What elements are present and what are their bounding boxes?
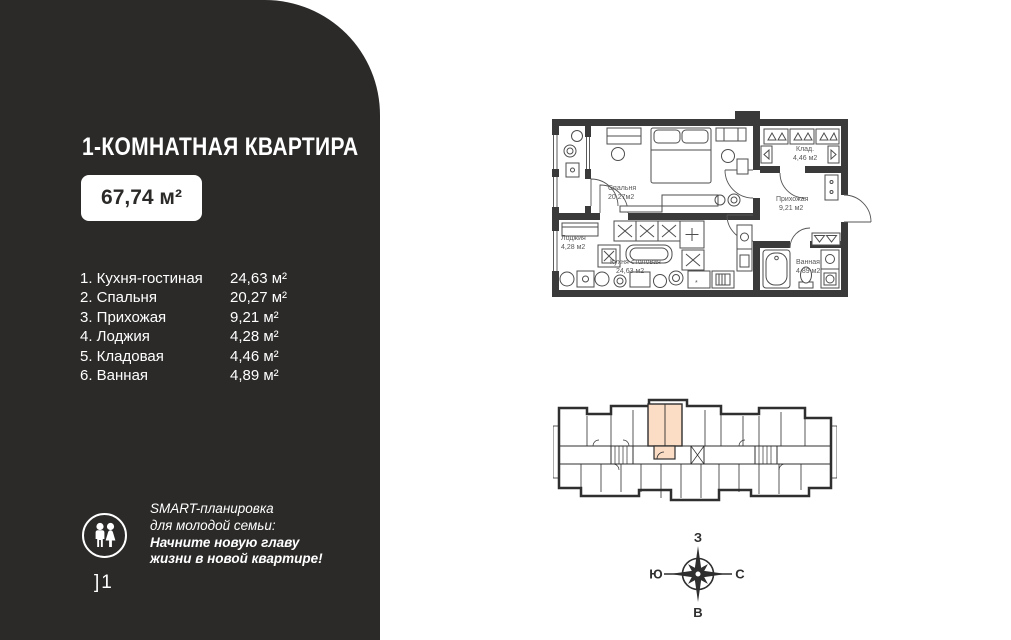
bedroom-area-label: 20,27м2 (608, 194, 634, 201)
room-area: 4,89 м² (230, 366, 287, 385)
room-list-item: 4. Лоджия 4,28 м² (80, 327, 287, 346)
hallway-furniture (812, 175, 840, 245)
promo-line-2: для молодой семьи: (150, 518, 323, 535)
room-label: 1. Кухня-гостиная (80, 269, 230, 288)
kitchen-label: Кухня-столовая (610, 259, 661, 266)
compass-north-label: С (735, 567, 745, 582)
page-title: 1-КОМНАТНАЯ КВАРТИРА (82, 133, 358, 162)
brochure-page: 1-КОМНАТНАЯ КВАРТИРА 67,74 м² 1. Кухня-г… (0, 0, 1011, 640)
promo-line-3: Начните новую главу (150, 535, 323, 552)
storage-label: Клад. (796, 146, 814, 153)
loggia-area-label: 4,28 м2 (561, 244, 585, 251)
page-mark: ]1 (94, 572, 114, 594)
couple-glyph (90, 521, 120, 550)
info-panel: 1-КОМНАТНАЯ КВАРТИРА 67,74 м² 1. Кухня-г… (0, 0, 380, 640)
bedroom-label: Спальня (608, 185, 636, 192)
stove-icon (688, 271, 710, 288)
stair-core (611, 446, 777, 464)
kitchen-area-label: 24,63 м2 (616, 268, 644, 275)
loggia-label: Лоджия (561, 235, 586, 242)
room-list-item: 2. Спальня 20,27 м² (80, 288, 287, 307)
hall-area-label: 9,21 м2 (779, 205, 803, 212)
window-icon (552, 135, 559, 271)
loggia-furniture (564, 131, 583, 178)
compass-rose-icon: З Ю С В (648, 526, 748, 622)
room-area: 9,21 м² (230, 308, 287, 327)
room-list-item: 3. Прихожая 9,21 м² (80, 308, 287, 327)
storage-area-label: 4,46 м2 (793, 155, 817, 162)
building-floor-plan (553, 394, 837, 506)
compass-south-label: Ю (649, 567, 662, 582)
room-area: 4,46 м² (230, 347, 287, 366)
highlighted-unit (648, 404, 682, 459)
room-list-item: 1. Кухня-гостиная 24,63 м² (80, 269, 287, 288)
vent-shaft (735, 111, 760, 120)
room-area: 24,63 м² (230, 269, 287, 288)
total-area-value: 67,74 м² (101, 186, 182, 210)
compass-east-label: В (693, 605, 702, 620)
room-label: 2. Спальня (80, 288, 230, 307)
room-label: 6. Ванная (80, 366, 230, 385)
promo-line-4: жизни в новой квартире! (150, 551, 323, 568)
apartment-floor-plan: * (550, 109, 880, 303)
stove-mark: * (695, 280, 698, 287)
total-area-badge: 67,74 м² (81, 175, 202, 221)
room-label: 4. Лоджия (80, 327, 230, 346)
promo-line-1: SMART-планировка (150, 501, 323, 518)
bath-label: Ванная (796, 259, 820, 266)
room-label: 5. Кладовая (80, 347, 230, 366)
family-couple-icon (82, 513, 127, 558)
promo-text: SMART-планировка для молодой семьи: Начн… (150, 501, 323, 568)
room-area: 20,27 м² (230, 288, 287, 307)
room-area: 4,28 м² (230, 327, 287, 346)
room-list-item: 5. Кладовая 4,46 м² (80, 347, 287, 366)
bath-area-label: 4,89 м2 (796, 268, 820, 275)
hall-label: Прихожая (776, 196, 809, 203)
kitchen-furniture: * (560, 221, 752, 288)
room-list: 1. Кухня-гостиная 24,63 м² 2. Спальня 20… (80, 269, 287, 385)
room-label: 3. Прихожая (80, 308, 230, 327)
room-list-item: 6. Ванная 4,89 м² (80, 366, 287, 385)
compass-west-label: З (694, 530, 702, 545)
